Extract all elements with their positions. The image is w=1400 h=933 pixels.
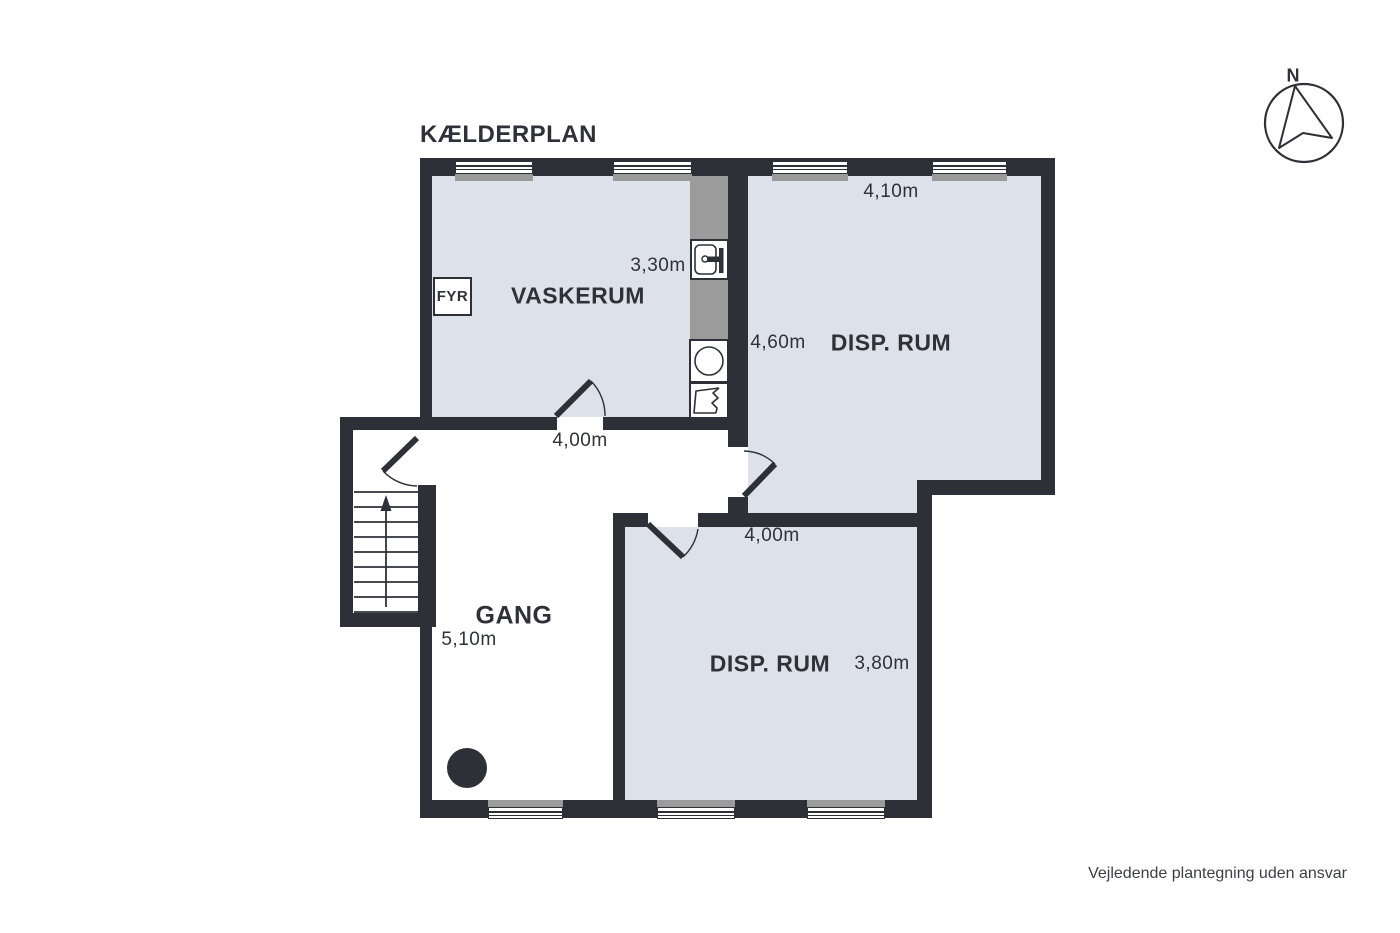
wall-segment	[613, 513, 625, 800]
window	[613, 161, 692, 174]
window-pane-line	[489, 815, 562, 817]
dim-label-disp-top-height: 4,60m	[750, 332, 805, 354]
wall-segment	[340, 417, 353, 627]
wall-segment	[917, 480, 932, 818]
window-sill	[657, 800, 735, 807]
window-pane-line	[614, 169, 691, 171]
wall-segment	[728, 158, 748, 447]
page-title: KÆLDERPLAN	[420, 121, 597, 149]
room-disp-top-floor	[917, 176, 1041, 480]
window-pane-line	[614, 165, 691, 167]
window-pane-line	[808, 811, 884, 813]
dim-label-disp-bottom-height: 3,80m	[854, 653, 909, 675]
window	[455, 161, 533, 174]
window-pane-line	[489, 811, 562, 813]
wall-segment	[418, 485, 436, 627]
wall-segment	[603, 417, 748, 430]
window-pane-line	[658, 815, 734, 817]
compass-needle	[1279, 86, 1332, 148]
north-label: N	[1287, 66, 1300, 87]
window-pane-line	[808, 815, 884, 817]
wall-segment	[420, 158, 432, 417]
staircase	[354, 492, 418, 612]
window-sill	[488, 800, 563, 807]
window-pane-line	[456, 165, 532, 167]
furnace-box: FYR	[433, 277, 472, 316]
window-pane-line	[773, 169, 847, 171]
door-stairwell	[383, 438, 417, 486]
wall-segment	[698, 513, 917, 527]
dim-label-disp-bottom-width: 4,00m	[744, 525, 799, 547]
stairs-up-arrow	[381, 495, 392, 607]
disclaimer-text: Vejledende plantegning uden ansvar	[1088, 865, 1347, 883]
window-pane-line	[773, 165, 847, 167]
window-sill	[772, 174, 848, 181]
window-sill	[455, 174, 533, 181]
window-pane-line	[933, 169, 1006, 171]
dim-label-vaskerum-width: 3,30m	[630, 255, 685, 277]
window-sill	[932, 174, 1007, 181]
dim-label-vaskerum-door-width: 4,00m	[552, 430, 607, 452]
window	[488, 807, 563, 819]
wall-segment	[340, 417, 557, 430]
wall-segment	[1041, 158, 1055, 495]
wall-segment	[917, 480, 1055, 495]
north-indicator	[1265, 84, 1343, 162]
room-label-vaskerum: VASKERUM	[511, 283, 645, 310]
dim-label-gang-length: 5,10m	[441, 629, 496, 651]
compass-circle	[1265, 84, 1343, 162]
furnace-label: FYR	[437, 288, 469, 305]
window-pane-line	[658, 811, 734, 813]
window	[807, 807, 885, 819]
floor-drain-icon	[447, 748, 487, 788]
appliance-counter-strip	[690, 176, 728, 417]
window	[772, 161, 848, 174]
window	[932, 161, 1007, 174]
window-sill	[613, 174, 692, 181]
wall-segment	[420, 627, 432, 818]
room-label-disp-top: DISP. RUM	[831, 330, 951, 357]
window-pane-line	[933, 165, 1006, 167]
window-pane-line	[456, 169, 532, 171]
dim-label-disp-top-width: 4,10m	[863, 181, 918, 203]
window	[657, 807, 735, 819]
window-sill	[807, 800, 885, 807]
room-label-disp-bottom: DISP. RUM	[710, 651, 830, 678]
room-label-gang: GANG	[476, 602, 553, 631]
floorplan-canvas: KÆLDERPLAN	[0, 0, 1400, 933]
